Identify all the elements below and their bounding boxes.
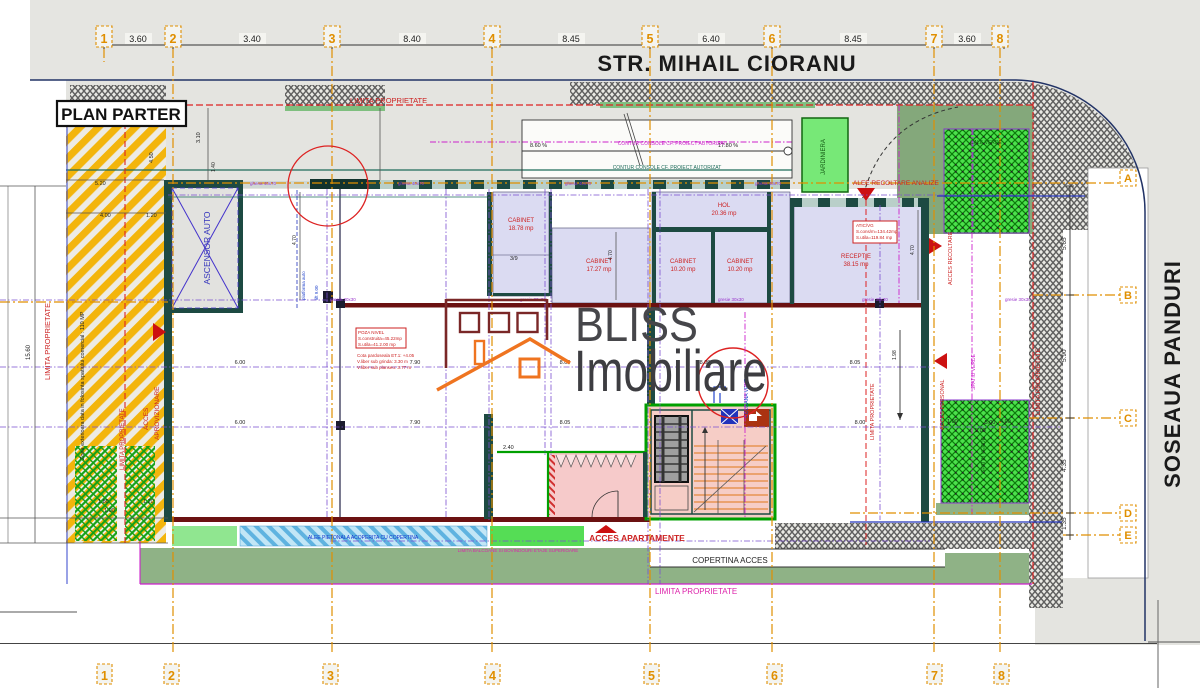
svg-text:6: 6 — [769, 32, 776, 46]
svg-text:S.utila=119.84 mp: S.utila=119.84 mp — [856, 235, 893, 240]
svg-text:5.00: 5.00 — [975, 428, 986, 434]
svg-text:CABINET: CABINET — [727, 259, 753, 265]
svg-text:1.00: 1.00 — [947, 419, 958, 425]
svg-text:S.construita=45.22mp: S.construita=45.22mp — [358, 336, 402, 341]
svg-text:ACCES PERSONAL: ACCES PERSONAL — [940, 380, 946, 430]
svg-text:1.20: 1.20 — [143, 499, 154, 505]
svg-text:POZA NIVEL: POZA NIVEL — [358, 330, 385, 335]
svg-text:8.45: 8.45 — [562, 34, 580, 44]
svg-text:JARDINIERA: JARDINIERA — [821, 139, 827, 175]
svg-text:Imobiliare: Imobiliare — [574, 339, 767, 404]
svg-text:ghena 40x70: ghena 40x70 — [250, 181, 277, 186]
svg-text:2: 2 — [170, 32, 177, 46]
svg-text:LIMITA BALCOANE SI BOVINDOURI: LIMITA BALCOANE SI BOVINDOURI ETAJE SUPE… — [458, 548, 579, 553]
svg-text:gresie 30x30: gresie 30x30 — [862, 297, 888, 302]
svg-text:5.00: 5.00 — [985, 420, 996, 426]
svg-text:1: 1 — [101, 669, 108, 683]
svg-text:8.05: 8.05 — [850, 360, 861, 366]
svg-text:1.00: 1.00 — [104, 508, 115, 514]
svg-text:S.cons/m=134.42mp: S.cons/m=134.42mp — [856, 229, 898, 234]
svg-text:COPERTINA ACCES: COPERTINA ACCES — [692, 556, 767, 565]
svg-text:LIMITA PROPRIETATE: LIMITA PROPRIETATE — [1035, 348, 1042, 415]
svg-text:gresie 30x30: gresie 30x30 — [1005, 297, 1031, 302]
svg-text:ghena 40x70: ghena 40x70 — [398, 181, 425, 186]
svg-text:15.60: 15.60 — [26, 344, 32, 360]
svg-text:20.36 mp: 20.36 mp — [711, 211, 737, 217]
svg-text:4: 4 — [489, 32, 496, 46]
svg-text:V.liber sub planseu: 3.77 m: V.liber sub planseu: 3.77 m — [357, 365, 411, 370]
svg-text:SPATIU VERDE: SPATIU VERDE — [971, 353, 977, 390]
svg-text:Zona exterioara data in folosi: Zona exterioara data in folosinta spatiu… — [80, 311, 86, 460]
svg-text:2.40: 2.40 — [503, 445, 514, 451]
svg-text:6.00: 6.00 — [235, 420, 246, 426]
svg-text:8: 8 — [998, 669, 1005, 683]
svg-text:6.00: 6.00 — [235, 360, 246, 366]
svg-text:SOSEAUA PANDURI: SOSEAUA PANDURI — [1160, 260, 1185, 488]
svg-text:B: B — [1124, 290, 1132, 302]
svg-text:8.40: 8.40 — [403, 34, 421, 44]
svg-text:V.liber sub grinda: 3.30 m: V.liber sub grinda: 3.30 m — [357, 359, 408, 364]
svg-text:HOL: HOL — [718, 203, 731, 209]
svg-text:ALEE PIETONALA ACOPERITA CU CO: ALEE PIETONALA ACOPERITA CU COPERTINA — [308, 535, 419, 541]
svg-text:ghena 40x70: ghena 40x70 — [565, 181, 592, 186]
svg-text:5.20: 5.20 — [95, 181, 106, 187]
svg-text:4.70: 4.70 — [292, 235, 298, 245]
svg-text:4.70: 4.70 — [910, 245, 916, 255]
svg-text:8.60 %: 8.60 % — [530, 143, 547, 149]
svg-text:7.90: 7.90 — [410, 360, 421, 366]
svg-text:3.60: 3.60 — [129, 34, 147, 44]
svg-text:6: 6 — [771, 669, 778, 683]
svg-text:3/9: 3/9 — [510, 256, 518, 262]
svg-text:RECEPTIE: RECEPTIE — [841, 254, 871, 260]
svg-text:S.utila=41.2.00 mp: S.utila=41.2.00 mp — [358, 342, 396, 347]
svg-text:5: 5 — [647, 32, 654, 46]
svg-text:4.50: 4.50 — [149, 152, 155, 163]
svg-text:4: 4 — [489, 669, 496, 683]
svg-text:SPATIU VERDE: SPATIU VERDE — [981, 436, 987, 473]
svg-text:1.20: 1.20 — [146, 213, 157, 219]
svg-text:CABINET: CABINET — [670, 259, 696, 265]
svg-text:1.40: 1.40 — [211, 162, 217, 172]
svg-text:1.80: 1.80 — [98, 499, 109, 505]
svg-text:STR. MIHAIL CIORANU: STR. MIHAIL CIORANU — [597, 51, 856, 76]
svg-text:Cota pardoseala ET.1: +4.05: Cota pardoseala ET.1: +4.05 — [357, 353, 415, 358]
svg-text:7: 7 — [931, 32, 938, 46]
svg-text:5.65: 5.65 — [1061, 237, 1068, 250]
svg-text:ALEE RECOLTARE ANALIZE: ALEE RECOLTARE ANALIZE — [853, 180, 939, 187]
svg-text:5: 5 — [648, 669, 655, 683]
svg-text:10.20 mp: 10.20 mp — [670, 267, 696, 273]
svg-text:7: 7 — [931, 669, 938, 683]
svg-text:LIMITA PROPRIETATE: LIMITA PROPRIETATE — [43, 303, 52, 380]
svg-text:8.45: 8.45 — [844, 34, 862, 44]
svg-text:LIMITA PROPRIETATE: LIMITA PROPRIETATE — [120, 408, 126, 470]
svg-text:1: 1 — [101, 32, 108, 46]
svg-text:4.70: 4.70 — [608, 250, 614, 260]
svg-text:APROVIZIONARE: APROVIZIONARE — [154, 386, 161, 440]
svg-text:ACCES: ACCES — [143, 407, 150, 430]
svg-text:CONTUR CONSOLE CF. PROIECT AUT: CONTUR CONSOLE CF. PROIECT AUTORIZAT — [618, 141, 727, 147]
svg-text:3.60: 3.60 — [958, 34, 976, 44]
svg-text:CONTUR CONSOLE CF. PROIECT AUT: CONTUR CONSOLE CF. PROIECT AUTORIZAT — [613, 165, 722, 171]
svg-text:8.00: 8.00 — [855, 420, 866, 426]
svg-text:ACCES APARTAMENTE: ACCES APARTAMENTE — [589, 533, 685, 543]
svg-text:4.00: 4.00 — [100, 213, 111, 219]
svg-text:gresie 30x30: gresie 30x30 — [718, 297, 744, 302]
svg-text:E: E — [1124, 530, 1131, 542]
svg-text:gresie 30x30: gresie 30x30 — [330, 297, 356, 302]
svg-text:18.78 mp: 18.78 mp — [508, 226, 534, 232]
svg-text:4.00: 4.00 — [1000, 419, 1011, 425]
svg-text:8.05: 8.05 — [560, 420, 571, 426]
svg-text:CALE VERDE: CALE VERDE — [970, 140, 1002, 146]
svg-text:lift 9.00: lift 9.00 — [314, 285, 319, 300]
svg-text:ghena 40x70: ghena 40x70 — [755, 181, 782, 186]
svg-text:CABINET: CABINET — [508, 218, 534, 224]
svg-text:PLAN PARTER: PLAN PARTER — [61, 105, 181, 124]
svg-text:10.20 mp: 10.20 mp — [727, 267, 753, 273]
svg-text:3: 3 — [327, 669, 334, 683]
svg-text:17.27 mp: 17.27 mp — [586, 267, 612, 273]
svg-text:8: 8 — [997, 32, 1004, 46]
svg-text:7.90: 7.90 — [410, 420, 421, 426]
svg-text:6.40: 6.40 — [702, 34, 720, 44]
svg-text:1.98: 1.98 — [892, 350, 898, 360]
svg-text:A: A — [1124, 173, 1132, 185]
svg-text:LIMITA PROPRIETATE: LIMITA PROPRIETATE — [655, 587, 737, 596]
svg-text:3.10: 3.10 — [196, 132, 202, 143]
svg-text:1.35: 1.35 — [1061, 517, 1068, 530]
svg-text:ACCES RECOLTARE: ACCES RECOLTARE — [948, 231, 954, 285]
svg-text:LIMITA PROPRIETATE: LIMITA PROPRIETATE — [870, 383, 876, 440]
svg-text:C: C — [1124, 413, 1132, 425]
svg-text:2: 2 — [168, 669, 175, 683]
svg-text:platforma auto: platforma auto — [301, 271, 306, 300]
svg-text:ATIC/VG: ATIC/VG — [856, 223, 874, 228]
svg-text:ASCENSOR AUTO: ASCENSOR AUTO — [202, 211, 212, 284]
svg-text:D: D — [1124, 508, 1132, 520]
svg-text:3: 3 — [329, 32, 336, 46]
svg-text:3.40: 3.40 — [243, 34, 261, 44]
svg-text:5.90: 5.90 — [1061, 349, 1068, 362]
svg-text:4.35: 4.35 — [1061, 459, 1068, 472]
svg-text:LIMITA PROPRIETATE: LIMITA PROPRIETATE — [350, 96, 427, 105]
svg-text:38.15 mp: 38.15 mp — [843, 262, 869, 268]
